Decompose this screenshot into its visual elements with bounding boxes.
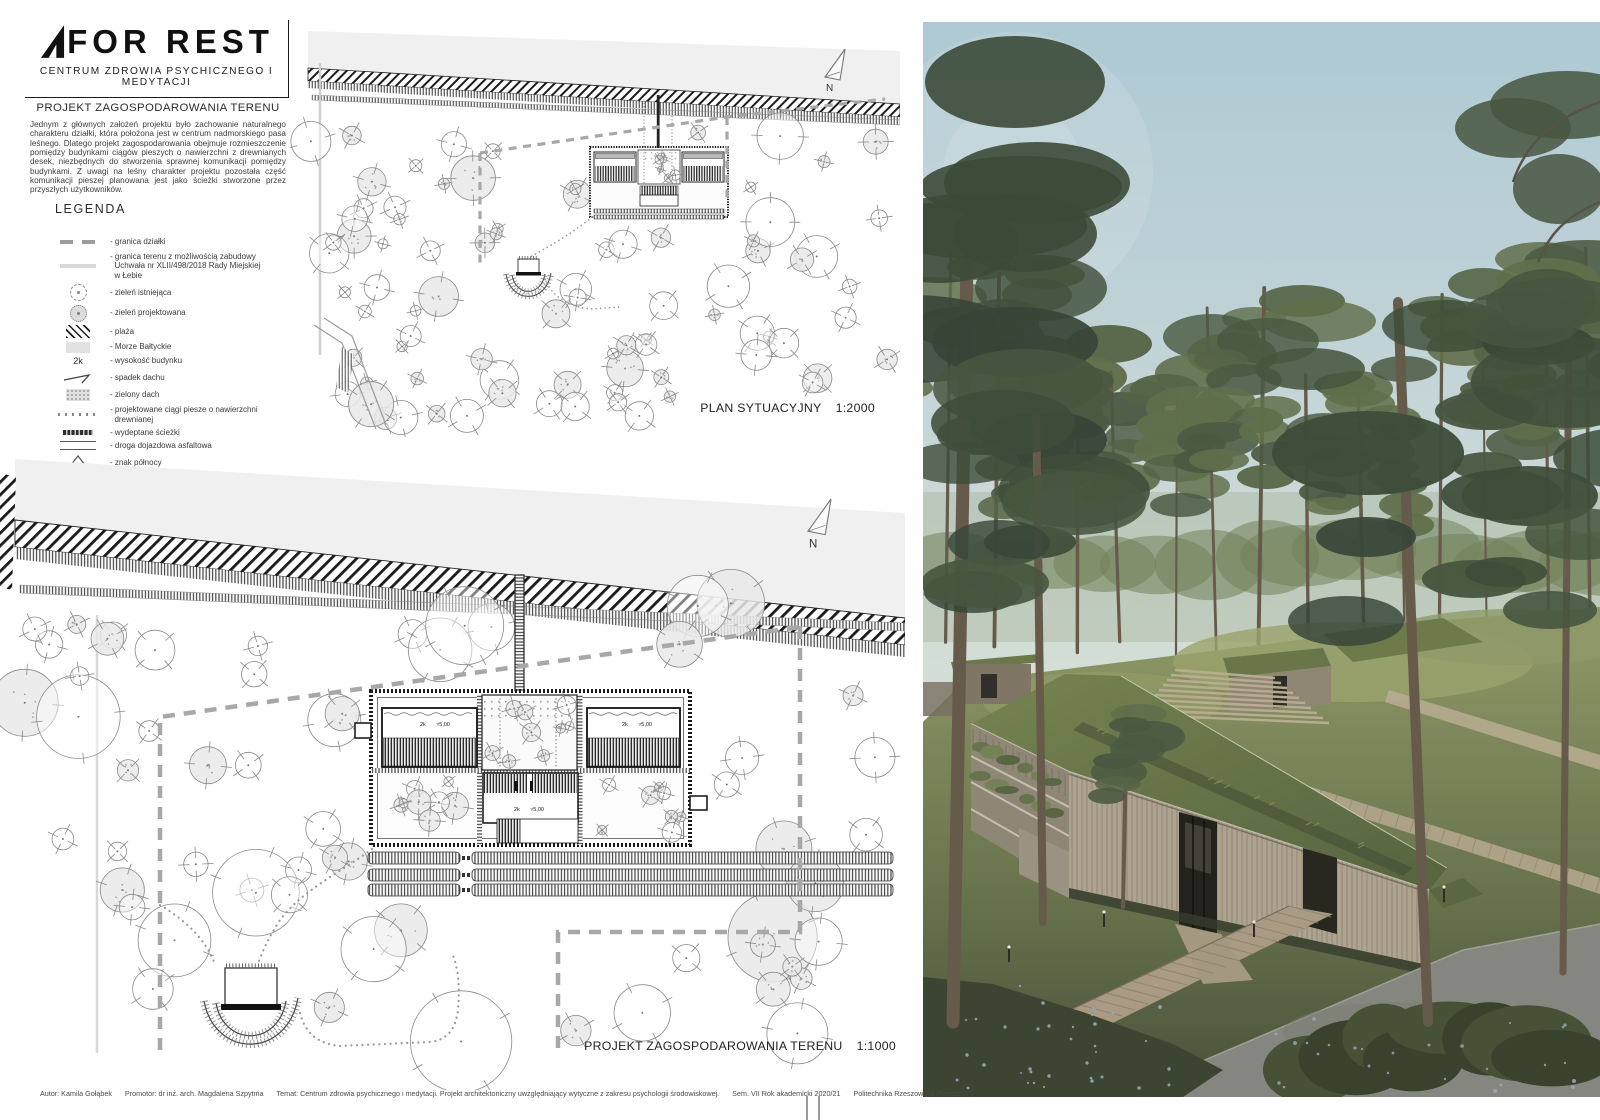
legend-tree-proposed-icon [55, 305, 101, 322]
logo-title: FOR REST [67, 25, 274, 58]
sea-beach-band [308, 31, 900, 125]
legend-label: - Morze Bałtyckie [110, 342, 171, 352]
legend: LEGENDA - granica działki- granica teren… [55, 202, 295, 472]
footer-author: Autor: Kamila Gołąbek [40, 1089, 112, 1098]
footer-promoter: Promotor: dr inż. arch. Magdalena Szpytm… [125, 1089, 264, 1098]
legend-item-asphalt-road: - droga dojazdowa asfaltowa [55, 441, 295, 451]
master-plan-label: PROJEKT ZAGOSPODAROWANIA TERENU1:1000 [490, 1039, 896, 1053]
building-level-label: ▿5,00 [639, 722, 652, 728]
legend-label: - wydeptane ścieżki [110, 428, 180, 438]
legend-label: - zielony dach [110, 390, 159, 400]
intro-section: PROJEKT ZAGOSPODAROWANIA TERENU Jednym z… [30, 102, 286, 195]
legend-item-dotted-path: - projektowane ciągi piesze o nawierzchn… [55, 405, 295, 425]
building-height-label: 2k [514, 807, 520, 813]
legend-beach-hatch-icon [55, 325, 101, 338]
presentation-board: FOR REST CENTRUM ZDROWIA PSYCHICZNEGO I … [0, 0, 1600, 1120]
legend-tree-existing-icon [55, 284, 101, 301]
boardwalk-strips [368, 852, 893, 896]
master-plan-scale: 1:1000 [857, 1039, 896, 1053]
legend-label: - granica działki [110, 237, 166, 247]
master-plan-1-1000-drawing: 2k▿5,002k▿5,002k▿5,00 N [0, 455, 905, 1090]
legend-label: - zieleń istniejąca [110, 288, 171, 298]
site-plan-scale: 1:2000 [836, 401, 875, 415]
legend-label: - droga dojazdowa asfaltowa [110, 441, 212, 451]
footer-topic: Temat: Centrum zdrowia psychicznego i me… [277, 1089, 720, 1098]
north-letter: N [826, 83, 833, 94]
legend-boundary-line-icon [55, 264, 101, 268]
legend-item-height-text: 2k- wysokość budynku [55, 356, 295, 366]
legend-item-boundary-line: - granica terenu z możliwością zabudowy … [55, 252, 295, 281]
legend-label: - spadek dachu [110, 373, 165, 383]
legend-item-tree-proposed: - zieleń projektowana [55, 305, 295, 322]
legend-items: - granica działki- granica terenu z możl… [55, 236, 295, 472]
legend-sea-icon [55, 342, 101, 353]
amphitheatre-plan [204, 966, 298, 1044]
legend-dotted-path-icon [55, 413, 101, 416]
intro-body: Jednym z głównych założeń projektu było … [30, 120, 286, 195]
legend-item-green-roof: - zielony dach [55, 389, 295, 401]
legend-label: - wysokość budynku [110, 356, 182, 366]
building-level-label: ▿5,00 [531, 807, 544, 813]
logo-block: FOR REST CENTRUM ZDROWIA PSYCHICZNEGO I … [25, 20, 289, 98]
north-letter: N [809, 538, 817, 550]
legend-label: - projektowane ciągi piesze o nawierzchn… [110, 405, 258, 425]
intro-heading: PROJEKT ZAGOSPODAROWANIA TERENU [30, 102, 286, 114]
building-level-label: ▿5,00 [437, 722, 450, 728]
legend-item-boundary-dashes: - granica działki [55, 236, 295, 248]
legend-item-roof-slope: - spadek dachu [55, 370, 295, 386]
legend-label: - zieleń projektowana [110, 308, 186, 318]
legend-boundary-dashes-icon [55, 236, 101, 248]
legend-item-tree-existing: - zieleń istniejąca [55, 284, 295, 301]
legend-item-beach-hatch: - plaża [55, 325, 295, 338]
legend-roof-slope-icon [55, 370, 101, 386]
registration-mark [818, 1096, 820, 1120]
logo-tree-icon [39, 24, 66, 59]
legend-heading: LEGENDA [55, 202, 295, 216]
registration-mark [806, 1096, 808, 1120]
footer: Autor: Kamila Gołąbek Promotor: dr inż. … [40, 1089, 920, 1098]
legend-asphalt-road-icon [55, 441, 101, 450]
footer-university: Politechnika Rzeszowska Plansza 2 [853, 1089, 968, 1098]
site-plan-label: PLAN SYTUACYJNY1:2000 [600, 401, 875, 415]
legend-item-sea: - Morze Bałtyckie [55, 342, 295, 353]
site-plan-1-2000-drawing: N [290, 25, 900, 437]
legend-label: - granica terenu z możliwością zabudowy … [110, 252, 260, 281]
building-height-label: 2k [420, 722, 426, 728]
building-height-label: 2k [622, 722, 628, 728]
legend-green-roof-icon [55, 389, 101, 401]
legend-item-trodden-path: - wydeptane ścieżki [55, 428, 295, 438]
legend-height-text-icon: 2k [55, 356, 101, 366]
master-plan-title: PROJEKT ZAGOSPODAROWANIA TERENU [584, 1039, 842, 1053]
amphitheatre-plan [506, 258, 551, 296]
site-plan-title: PLAN SYTUACYJNY [700, 401, 821, 415]
legend-trodden-path-icon [55, 430, 101, 435]
legend-label: - plaża [110, 327, 134, 337]
render-photo [923, 22, 1600, 1097]
logo-subtitle: CENTRUM ZDROWIA PSYCHICZNEGO I MEDYTACJI [25, 66, 288, 88]
logo-row: FOR REST [25, 24, 288, 59]
footer-semester: Sem. VII Rok akademicki 2020/21 [732, 1089, 840, 1098]
